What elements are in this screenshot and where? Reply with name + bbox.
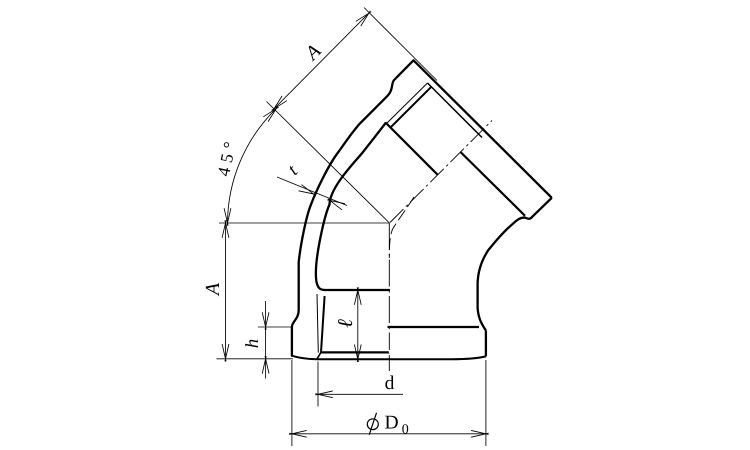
- svg-text:ℓ: ℓ: [333, 319, 357, 328]
- svg-text:d: d: [385, 373, 395, 394]
- svg-text:0: 0: [402, 422, 409, 437]
- svg-text:h: h: [243, 339, 263, 348]
- svg-text:D: D: [385, 413, 399, 434]
- svg-text:A: A: [202, 282, 224, 297]
